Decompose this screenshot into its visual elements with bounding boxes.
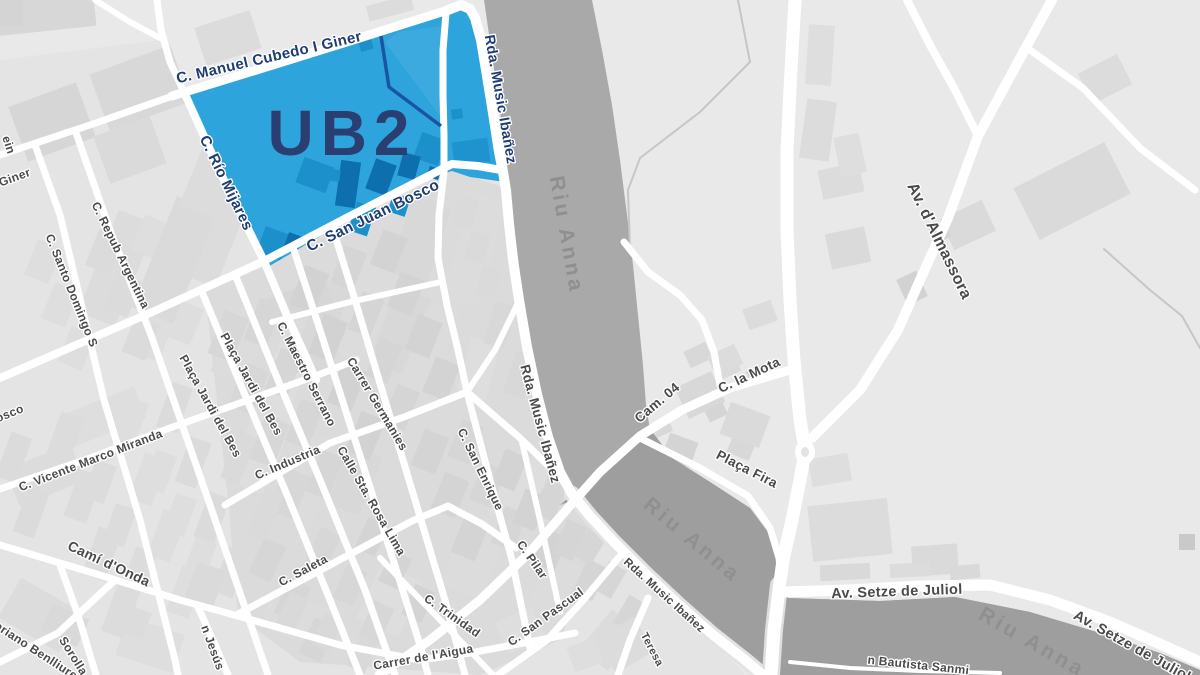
- svg-text:UB2: UB2: [267, 97, 416, 169]
